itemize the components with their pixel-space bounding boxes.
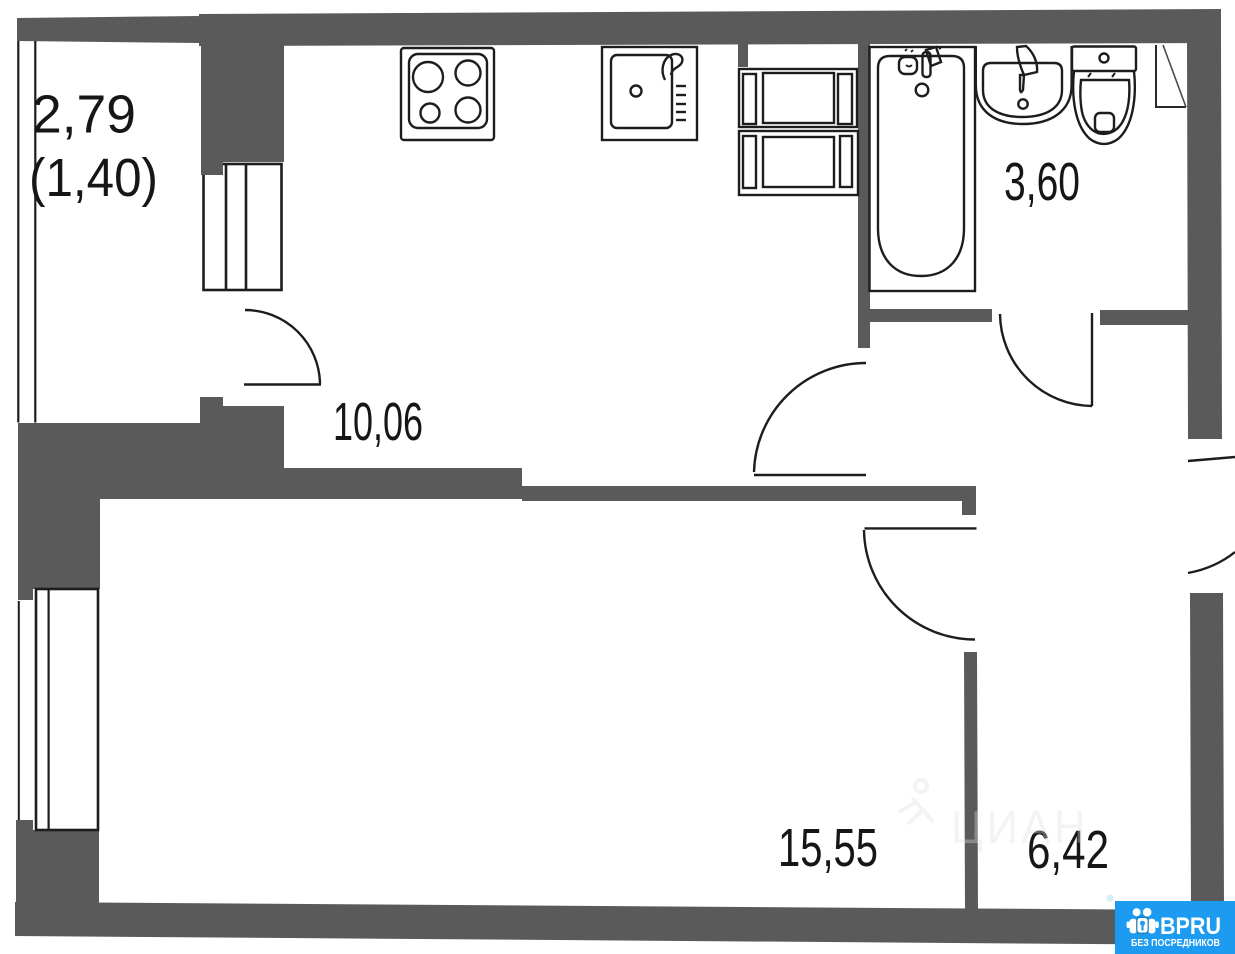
svg-text:БЕЗ ПОСРЕДНИКОВ: БЕЗ ПОСРЕДНИКОВ <box>1131 937 1220 949</box>
svg-text:(1,40): (1,40) <box>29 148 158 208</box>
svg-text:ЦИАН: ЦИАН <box>951 801 1089 853</box>
svg-text:BPRU: BPRU <box>1160 913 1221 940</box>
svg-text:10,06: 10,06 <box>333 392 423 452</box>
svg-text:15,55: 15,55 <box>778 818 878 878</box>
svg-text:3,60: 3,60 <box>1004 152 1080 212</box>
svg-text:2,79: 2,79 <box>32 85 136 145</box>
